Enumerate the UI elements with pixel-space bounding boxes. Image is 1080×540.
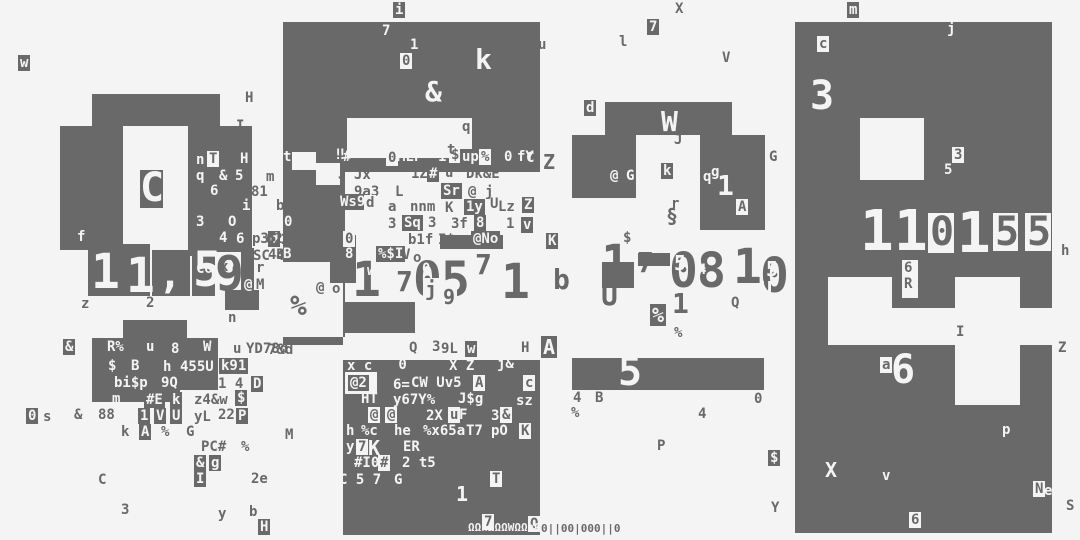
noise-glyph: 0 — [400, 53, 412, 69]
noise-glyph: 1y — [464, 199, 485, 215]
noise-glyph: @2 — [348, 375, 369, 391]
noise-glyph: h — [161, 359, 173, 375]
noise-glyph: % — [161, 425, 169, 439]
noise-glyph: & — [194, 455, 206, 471]
noise-glyph: H — [245, 91, 253, 105]
noise-glyph: % — [241, 440, 249, 454]
noise-glyph: %x65a — [423, 424, 465, 438]
noise-glyph: 1 — [860, 204, 894, 260]
noise-glyph: j — [947, 22, 955, 36]
noise-glyph: Z — [522, 197, 534, 213]
noise-glyph: R — [904, 277, 912, 291]
noise-block — [92, 94, 220, 126]
noise-glyph: @ — [242, 277, 254, 293]
noise-glyph: k — [475, 46, 492, 74]
noise-glyph: a — [388, 200, 396, 214]
noise-glyph: 1 — [138, 408, 150, 424]
noise-glyph: CW Uv5 — [411, 376, 462, 390]
noise-glyph: PC# — [201, 440, 226, 454]
noise-glyph: 3 — [810, 76, 834, 116]
noise-glyph: 3 — [952, 147, 964, 163]
noise-glyph: x c — [347, 359, 372, 373]
noise-glyph: u — [146, 340, 154, 354]
noise-glyph: # — [427, 166, 439, 182]
noise-block — [292, 170, 316, 185]
noise-glyph: he — [394, 424, 411, 438]
noise-glyph: d — [584, 100, 596, 116]
noise-glyph: 4 — [698, 263, 706, 277]
noise-glyph: W — [131, 175, 139, 189]
noise-glyph: Sr — [441, 183, 462, 199]
noise-glyph: nnm — [410, 200, 435, 214]
noise-glyph: G — [186, 425, 194, 439]
noise-glyph: s — [43, 410, 51, 424]
noise-glyph: % — [674, 326, 682, 340]
noise-glyph: T7 — [466, 424, 483, 438]
noise-glyph: 2 t5 — [402, 456, 436, 470]
noise-glyph: k91 — [219, 358, 248, 374]
noise-glyph: m — [266, 170, 274, 184]
noise-glyph: 5 — [235, 169, 243, 183]
noise-glyph: 3 — [388, 217, 396, 231]
noise-glyph: z4&w — [194, 393, 228, 407]
noise-glyph: P — [236, 408, 248, 424]
noise-glyph: 1 — [126, 252, 155, 300]
noise-glyph: 1 — [438, 150, 446, 164]
noise-glyph: 6 — [891, 350, 915, 390]
noise-glyph: v — [521, 217, 533, 233]
noise-glyph: Q — [409, 341, 417, 355]
noise-glyph: 0||00|000||0 — [541, 523, 620, 534]
noise-block — [60, 126, 123, 250]
noise-glyph: 4 — [573, 391, 581, 405]
noise-glyph: dt — [232, 262, 249, 276]
noise-glyph: 9 — [441, 286, 457, 308]
noise-glyph: $ — [235, 390, 247, 406]
noise-glyph: L — [395, 185, 403, 199]
noise-glyph: y67Y% — [393, 393, 435, 407]
noise-glyph: u — [538, 38, 546, 52]
noise-glyph: 0 — [343, 231, 355, 247]
noise-glyph: ΩΩ∩ΩΩΩWΩΩ∩Ω — [468, 522, 541, 533]
noise-glyph: 0 — [26, 408, 38, 424]
noise-glyph: I — [956, 325, 964, 339]
noise-glyph: 1 — [717, 172, 734, 200]
noise-glyph: 1 — [91, 248, 120, 296]
noise-glyph: # — [343, 150, 351, 164]
noise-glyph: g — [209, 455, 221, 471]
noise-glyph: C — [526, 151, 534, 165]
noise-glyph: m — [112, 392, 120, 406]
noise-glyph: % — [479, 149, 491, 165]
noise-glyph: 1 — [506, 217, 514, 231]
noise-glyph: e — [1044, 484, 1052, 498]
noise-glyph: 1 — [501, 258, 530, 306]
noise-glyph: Z — [1058, 341, 1066, 355]
noise-glyph: X Z — [449, 359, 474, 373]
noise-glyph: 7&d — [268, 343, 293, 357]
noise-glyph: c — [523, 375, 535, 391]
noise-glyph: V — [154, 408, 166, 424]
noise-glyph: 1 4 — [218, 377, 243, 391]
noise-glyph: 1 — [957, 206, 991, 262]
noise-glyph: 0 — [930, 212, 954, 252]
noise-glyph: C — [140, 168, 164, 208]
noise-glyph: m — [847, 2, 859, 18]
noise-glyph: 6 — [904, 261, 912, 275]
noise-glyph: Q — [731, 296, 739, 310]
noise-glyph: 2e — [251, 472, 268, 486]
noise-glyph: W — [201, 339, 213, 355]
noise-glyph: `0 — [390, 358, 407, 372]
noise-glyph: U — [601, 282, 618, 310]
noise-glyph: T — [490, 471, 502, 487]
noise-glyph: A — [736, 199, 748, 215]
noise-glyph: R% — [105, 339, 126, 355]
noise-cutout — [828, 308, 1052, 345]
noise-glyph: 7 — [356, 439, 368, 455]
glitch-captcha-canvas: wi710k&ulX7Vmjc3hGFHInTHq&5m681ibE3OWCf4… — [0, 0, 1080, 540]
noise-glyph: j — [423, 278, 439, 300]
noise-glyph: p — [1002, 423, 1010, 437]
noise-glyph: 1 — [456, 484, 468, 504]
noise-glyph: yL — [194, 410, 211, 424]
noise-glyph: Jx — [354, 168, 371, 182]
noise-glyph: K — [519, 423, 531, 439]
noise-glyph: @ — [368, 407, 380, 423]
noise-glyph: & — [500, 407, 512, 423]
noise-glyph: A — [473, 375, 485, 391]
noise-glyph: t — [283, 150, 291, 164]
noise-glyph: 0 — [754, 392, 762, 406]
noise-glyph: f — [75, 229, 87, 245]
noise-glyph: 8 — [474, 215, 486, 231]
noise-glyph: 0 — [504, 150, 512, 164]
noise-glyph: B — [283, 247, 291, 261]
noise-glyph: 3 — [491, 409, 499, 423]
noise-glyph: V — [722, 51, 730, 65]
noise-glyph: 6 — [210, 184, 218, 198]
noise-glyph: % — [650, 304, 666, 326]
noise-glyph: z — [81, 297, 89, 311]
noise-glyph: M — [285, 428, 293, 442]
noise-glyph: h — [1061, 244, 1069, 258]
noise-glyph: F — [795, 197, 803, 211]
noise-glyph: n — [196, 153, 204, 167]
noise-glyph: & — [74, 408, 82, 422]
noise-glyph: ER — [403, 440, 420, 454]
noise-glyph: 5 — [944, 163, 952, 177]
noise-glyph: 9L — [441, 342, 458, 356]
noise-glyph: Lz — [498, 200, 515, 214]
noise-glyph: 3 — [426, 215, 438, 231]
noise-glyph: 6= — [393, 378, 410, 392]
noise-glyph: u — [445, 166, 453, 180]
noise-glyph: 3 — [121, 503, 129, 517]
noise-glyph: Z — [543, 152, 555, 172]
noise-glyph: 1 — [733, 243, 762, 291]
noise-glyph: 7 — [647, 19, 659, 35]
noise-glyph: Ws9 — [338, 194, 367, 210]
noise-glyph: 1Z — [411, 167, 428, 181]
noise-glyph: K — [445, 201, 453, 215]
noise-glyph: b1f — [408, 233, 433, 247]
noise-glyph: d2 — [266, 232, 283, 246]
noise-glyph: F — [459, 408, 467, 422]
noise-glyph: bE — [276, 199, 293, 213]
noise-glyph: q — [462, 120, 470, 134]
noise-glyph: G — [769, 150, 777, 164]
noise-glyph: @ — [385, 407, 397, 423]
noise-glyph: 1 — [672, 290, 689, 318]
noise-glyph: $ — [768, 450, 780, 466]
noise-glyph: H — [521, 341, 529, 355]
noise-glyph: 0 — [284, 215, 292, 229]
noise-glyph: 88 — [98, 408, 115, 422]
noise-glyph: k — [170, 392, 182, 408]
noise-glyph: x — [220, 260, 228, 274]
noise-glyph: @No — [471, 231, 500, 247]
noise-cutout — [860, 118, 924, 180]
noise-glyph: A — [139, 424, 151, 440]
noise-glyph: J — [674, 133, 682, 147]
noise-glyph: 7 — [475, 251, 492, 279]
noise-glyph: P — [657, 439, 665, 453]
noise-glyph: $ — [108, 359, 116, 373]
noise-glyph: 6 — [909, 512, 921, 528]
noise-glyph: 3 — [196, 215, 204, 229]
noise-glyph: 5 — [766, 259, 778, 279]
noise-glyph: G — [394, 473, 402, 487]
noise-glyph: v — [882, 469, 890, 483]
noise-glyph: § — [666, 206, 678, 226]
noise-glyph: O — [228, 215, 236, 229]
noise-glyph: t — [447, 143, 455, 157]
noise-glyph: U — [170, 408, 182, 424]
noise-glyph: Dk&E — [466, 167, 500, 181]
noise-glyph: 455U — [180, 360, 214, 374]
noise-glyph: 5 — [618, 352, 642, 392]
noise-block — [572, 358, 764, 390]
noise-glyph: , — [158, 255, 182, 295]
noise-glyph: 2X — [426, 409, 443, 423]
noise-glyph: MLF — [397, 150, 422, 164]
noise-glyph: n — [228, 311, 236, 325]
noise-glyph: y — [346, 440, 354, 454]
noise-glyph: 5 — [1027, 212, 1051, 252]
noise-glyph: H — [258, 519, 270, 535]
noise-glyph: G — [626, 169, 634, 183]
noise-glyph: J — [338, 168, 346, 182]
noise-glyph: w — [465, 341, 477, 357]
noise-glyph: h — [346, 424, 354, 438]
noise-glyph: b — [249, 505, 257, 519]
noise-glyph: j& — [497, 357, 514, 371]
noise-glyph: @ — [610, 169, 618, 183]
noise-glyph: # — [378, 455, 390, 471]
noise-glyph: Sq — [402, 215, 423, 231]
noise-glyph: 1 — [894, 204, 928, 260]
noise-glyph: C 5 7 — [339, 473, 381, 487]
noise-glyph: d — [364, 195, 376, 211]
noise-glyph: @ — [316, 281, 324, 295]
noise-glyph: T — [207, 151, 219, 167]
noise-glyph: #E — [144, 392, 165, 408]
noise-glyph: U — [760, 279, 772, 299]
noise-glyph: I — [194, 471, 206, 487]
noise-glyph: V — [402, 248, 410, 262]
noise-glyph: Y — [771, 501, 779, 515]
noise-glyph: l — [619, 35, 627, 49]
noise-block — [92, 390, 180, 402]
noise-glyph: c — [817, 36, 829, 52]
noise-glyph: X — [675, 2, 683, 16]
noise-glyph: 5 — [995, 212, 1019, 252]
noise-glyph: up — [460, 149, 481, 165]
noise-glyph: 7 — [396, 268, 413, 296]
noise-glyph: I — [236, 119, 244, 133]
noise-glyph: i — [242, 199, 250, 213]
noise-glyph: 3f — [451, 217, 468, 231]
noise-glyph: K — [546, 233, 558, 249]
noise-glyph: k — [121, 425, 129, 439]
noise-glyph: 22 — [218, 408, 235, 422]
noise-glyph: pO — [491, 424, 508, 438]
noise-glyph: 5 — [674, 253, 686, 273]
noise-glyph: w — [367, 264, 375, 278]
noise-glyph: M — [256, 278, 264, 292]
noise-glyph: @ — [468, 185, 476, 199]
noise-glyph: bi$p — [114, 376, 148, 390]
noise-glyph: 7 — [382, 24, 390, 38]
noise-glyph: 7 — [637, 249, 654, 277]
noise-glyph: 1 — [410, 38, 418, 52]
noise-glyph: J$g — [458, 392, 483, 406]
noise-glyph: #I0 — [354, 456, 379, 470]
noise-glyph: i — [393, 2, 405, 18]
noise-glyph: 2 — [146, 296, 154, 310]
noise-glyph: o — [332, 282, 340, 296]
noise-glyph: b — [553, 266, 570, 294]
noise-glyph: Co — [196, 262, 213, 276]
noise-glyph: C — [98, 473, 106, 487]
noise-glyph: % — [290, 292, 307, 320]
noise-glyph: 9Q — [161, 376, 178, 390]
noise-glyph: 81 — [251, 185, 268, 199]
noise-glyph: 8 — [171, 342, 179, 356]
noise-glyph: u — [233, 342, 241, 356]
noise-glyph: 6 — [236, 232, 244, 246]
noise-glyph: & — [63, 339, 75, 355]
noise-glyph: q — [196, 169, 204, 183]
noise-glyph: 0 — [422, 262, 430, 276]
noise-glyph: 4 — [698, 407, 706, 421]
noise-glyph: D — [251, 376, 263, 392]
noise-glyph: sz — [516, 394, 533, 408]
noise-glyph: A — [541, 336, 557, 358]
noise-glyph: HT — [361, 392, 378, 406]
noise-glyph: y — [218, 507, 226, 521]
noise-glyph: B — [595, 391, 603, 405]
noise-glyph: I$ — [438, 233, 455, 247]
noise-glyph: w — [18, 55, 30, 71]
noise-glyph: X — [825, 460, 837, 480]
noise-glyph: % — [571, 406, 579, 420]
noise-glyph: & — [219, 169, 227, 183]
noise-glyph: S — [1066, 499, 1074, 513]
noise-glyph: H — [240, 152, 248, 166]
noise-glyph: k — [661, 163, 673, 179]
noise-glyph: r — [256, 261, 264, 275]
noise-glyph: B — [131, 359, 139, 373]
noise-glyph: & — [425, 78, 442, 106]
